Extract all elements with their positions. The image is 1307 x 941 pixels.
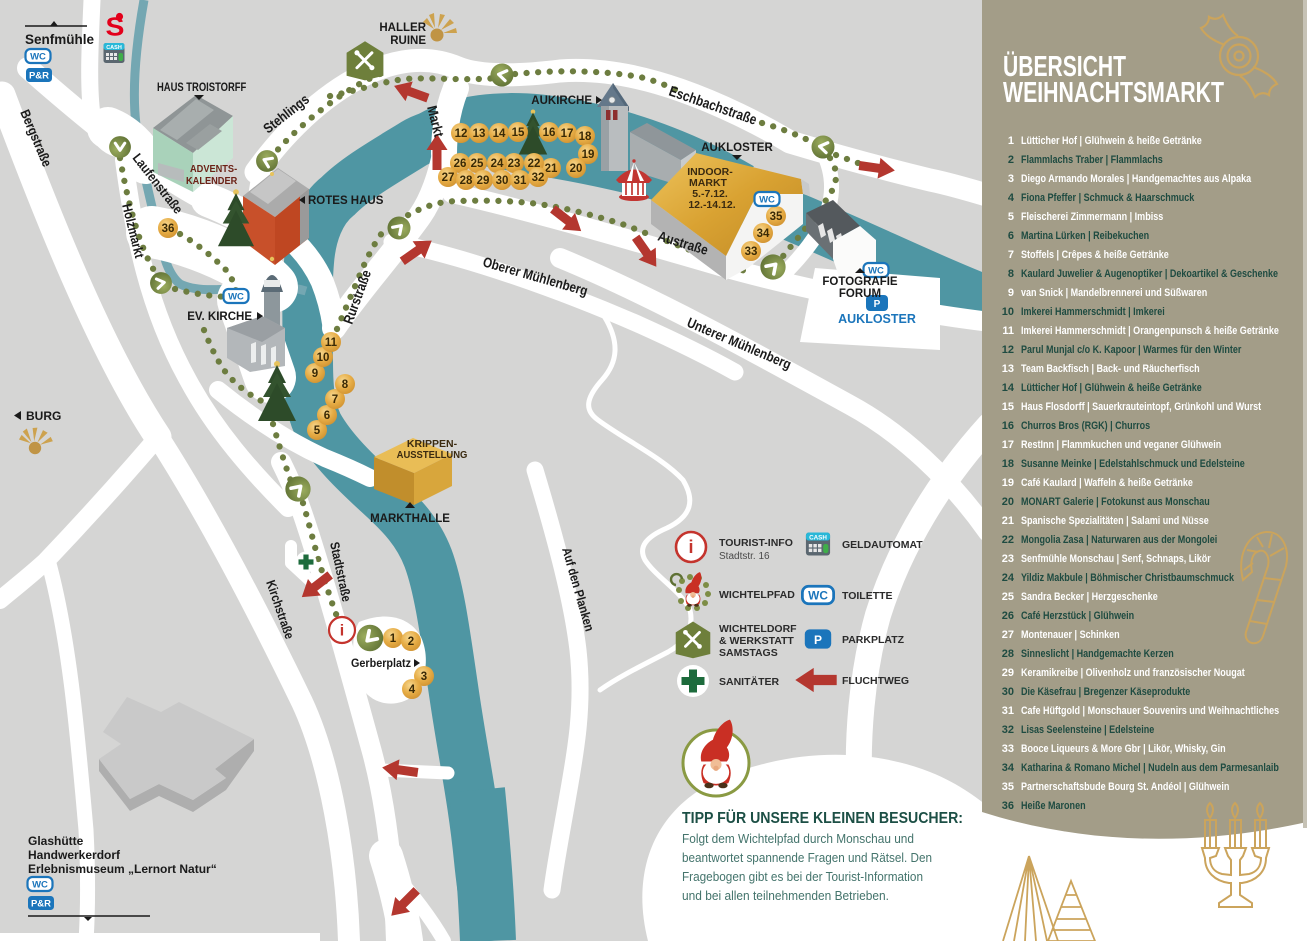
svg-text:Lütticher Hof | Glühwein & hei: Lütticher Hof | Glühwein & heiße Getränk… <box>1021 135 1202 147</box>
svg-text:FORUM: FORUM <box>839 288 881 300</box>
svg-text:26: 26 <box>1002 610 1014 622</box>
svg-text:HALLER: HALLER <box>379 22 426 34</box>
svg-text:9: 9 <box>1008 287 1014 299</box>
svg-text:34: 34 <box>1002 762 1015 774</box>
svg-text:Erlebnismuseum „Lernort Natur“: Erlebnismuseum „Lernort Natur“ <box>28 862 217 876</box>
svg-text:Churros Bros (RGK) | Churros: Churros Bros (RGK) | Churros <box>1021 420 1151 432</box>
svg-text:Diego Armando Morales | Handge: Diego Armando Morales | Handgemachtes au… <box>1021 173 1252 185</box>
svg-text:Partnerschaftsbude Bourg St. A: Partnerschaftsbude Bourg St. Andéol | Gl… <box>1021 781 1229 793</box>
svg-text:WEIHNACHTSMARKT: WEIHNACHTSMARKT <box>1003 77 1224 109</box>
svg-text:Lütticher Hof | Glühwein & hei: Lütticher Hof | Glühwein & heiße Getränk… <box>1021 382 1202 394</box>
svg-text:16: 16 <box>1002 420 1014 432</box>
svg-text:23: 23 <box>508 158 521 170</box>
svg-text:Fleischerei Zimmermann | Imbis: Fleischerei Zimmermann | Imbiss <box>1021 211 1164 223</box>
svg-text:Fiona Pfeffer | Schmuck & Haar: Fiona Pfeffer | Schmuck & Haarschmuck <box>1021 192 1195 204</box>
svg-text:4: 4 <box>409 684 416 696</box>
svg-text:26: 26 <box>454 158 467 170</box>
svg-text:36: 36 <box>162 223 175 235</box>
svg-text:22: 22 <box>1002 534 1014 546</box>
svg-text:11: 11 <box>325 337 338 349</box>
svg-text:10: 10 <box>317 352 330 364</box>
svg-text:Senfmühle Monschau | Senf, Sch: Senfmühle Monschau | Senf, Schnaps, Likö… <box>1021 553 1211 565</box>
svg-text:28: 28 <box>1002 648 1014 660</box>
svg-text:36: 36 <box>1002 800 1014 812</box>
svg-text:6: 6 <box>324 410 330 422</box>
svg-text:2: 2 <box>408 636 414 648</box>
svg-text:BURG: BURG <box>26 409 61 423</box>
svg-text:Martina Lürken | Reibekuchen: Martina Lürken | Reibekuchen <box>1021 230 1149 242</box>
svg-text:Stoffels | Crêpes & heiße Getr: Stoffels | Crêpes & heiße Getränke <box>1021 249 1169 261</box>
svg-text:AUKLOSTER: AUKLOSTER <box>838 312 916 326</box>
svg-text:Yildiz Makbule | Böhmischer Ch: Yildiz Makbule | Böhmischer Christbaumsc… <box>1021 572 1234 584</box>
svg-text:Sinneslicht | Handgemachte Ker: Sinneslicht | Handgemachte Kerzen <box>1021 648 1174 660</box>
svg-text:Flammlachs Traber | Flammlachs: Flammlachs Traber | Flammlachs <box>1021 154 1163 166</box>
svg-text:Keramikreibe | Olivenholz und: Keramikreibe | Olivenholz und französisc… <box>1021 667 1245 679</box>
svg-text:5: 5 <box>1008 211 1014 223</box>
svg-text:31: 31 <box>1002 705 1014 717</box>
svg-text:Senfmühle: Senfmühle <box>25 32 95 47</box>
svg-text:33: 33 <box>1002 743 1014 755</box>
svg-text:beantwortet spannende Fragen u: beantwortet spannende Fragen und Rätsel.… <box>682 850 932 865</box>
svg-text:Imkerei Hammerschmidt | Imkere: Imkerei Hammerschmidt | Imkerei <box>1021 306 1165 318</box>
svg-text:Parul Munjal c/o K. Kapoor | W: Parul Munjal c/o K. Kapoor | Warmes für … <box>1021 344 1241 356</box>
svg-text:28: 28 <box>460 175 473 187</box>
svg-text:32: 32 <box>1002 724 1014 736</box>
svg-text:20: 20 <box>570 163 583 175</box>
svg-text:Sandra Becker | Herzgeschenke: Sandra Becker | Herzgeschenke <box>1021 591 1158 603</box>
svg-text:14: 14 <box>1002 382 1015 394</box>
svg-text:13: 13 <box>1002 363 1014 375</box>
svg-text:SAMSTAGS: SAMSTAGS <box>719 647 778 659</box>
svg-text:11: 11 <box>1002 325 1014 337</box>
svg-text:13: 13 <box>473 128 486 140</box>
svg-text:AUSSTELLUNG: AUSSTELLUNG <box>397 450 468 462</box>
svg-text:3: 3 <box>421 671 427 683</box>
svg-text:33: 33 <box>745 246 758 258</box>
svg-text:KALENDER: KALENDER <box>186 176 237 188</box>
svg-text:19: 19 <box>582 149 595 161</box>
svg-text:4: 4 <box>1008 192 1015 204</box>
svg-text:Katharina & Romano Michel | Nu: Katharina & Romano Michel | Nudeln aus d… <box>1021 762 1279 774</box>
svg-text:van Snick | Mandelbrennerei un: van Snick | Mandelbrennerei und Süßwaren <box>1021 287 1207 299</box>
svg-text:25: 25 <box>471 158 484 170</box>
svg-text:und bei allen teilnehmenden Be: und bei allen teilnehmenden Betrieben. <box>682 888 889 903</box>
svg-text:ADVENTS-: ADVENTS- <box>190 164 237 176</box>
svg-text:Handwerkerdorf: Handwerkerdorf <box>28 848 121 862</box>
svg-text:Glashütte: Glashütte <box>28 834 84 848</box>
svg-text:19: 19 <box>1002 477 1014 489</box>
svg-text:12: 12 <box>1002 344 1014 356</box>
svg-text:15: 15 <box>1002 401 1014 413</box>
svg-text:Café Kaulard | Waffeln & heiße: Café Kaulard | Waffeln & heiße Getränke <box>1021 477 1193 489</box>
svg-text:23: 23 <box>1002 553 1014 565</box>
svg-text:14: 14 <box>493 128 506 140</box>
svg-text:18: 18 <box>1002 458 1014 470</box>
svg-text:i: i <box>688 537 693 557</box>
svg-text:WICHTELPFAD: WICHTELPFAD <box>719 589 795 601</box>
svg-text:PARKPLATZ: PARKPLATZ <box>842 634 905 646</box>
svg-text:1: 1 <box>390 633 397 645</box>
svg-text:17: 17 <box>1002 439 1014 451</box>
svg-text:5: 5 <box>314 425 321 437</box>
svg-text:6: 6 <box>1008 230 1014 242</box>
svg-text:Lisas Seelensteine | Edelstein: Lisas Seelensteine | Edelsteine <box>1021 724 1155 736</box>
svg-text:30: 30 <box>496 175 509 187</box>
svg-text:Team Backfisch | Back- und Räu: Team Backfisch | Back- und Räucherfisch <box>1021 363 1200 375</box>
svg-text:MONART Galerie | Fotokunst aus: MONART Galerie | Fotokunst aus Monschau <box>1021 496 1210 508</box>
svg-text:20: 20 <box>1002 496 1014 508</box>
svg-text:Die Käsefrau | Bregenzer Käsep: Die Käsefrau | Bregenzer Käseprodukte <box>1021 686 1191 698</box>
svg-text:35: 35 <box>770 211 783 223</box>
svg-text:Imkerei Hammerschmidt | Orange: Imkerei Hammerschmidt | Orangenpunsch & … <box>1021 325 1279 337</box>
svg-text:Mongolia Zasa | Naturwaren aus: Mongolia Zasa | Naturwaren aus der Mongo… <box>1021 534 1217 546</box>
svg-text:Gerberplatz: Gerberplatz <box>351 658 411 671</box>
svg-text:8: 8 <box>342 379 349 391</box>
svg-text:12.-14.12.: 12.-14.12. <box>688 199 735 211</box>
svg-text:Café Herzstück | Glühwein: Café Herzstück | Glühwein <box>1021 610 1134 622</box>
svg-text:35: 35 <box>1002 781 1014 793</box>
svg-text:9: 9 <box>312 368 318 380</box>
svg-text:Spanische Spezialitäten | Sala: Spanische Spezialitäten | Salami und Nüs… <box>1021 515 1209 527</box>
svg-text:29: 29 <box>1002 667 1014 679</box>
svg-text:25: 25 <box>1002 591 1014 603</box>
svg-text:1: 1 <box>1008 135 1014 147</box>
svg-text:SANITÄTER: SANITÄTER <box>719 675 780 688</box>
svg-text:MARKTHALLE: MARKTHALLE <box>370 513 450 525</box>
svg-text:RUINE: RUINE <box>390 35 426 47</box>
svg-text:ROTES HAUS: ROTES HAUS <box>308 195 384 207</box>
svg-text:KRIPPEN-: KRIPPEN- <box>407 438 458 450</box>
svg-text:RestInn | Flammkuchen und vega: RestInn | Flammkuchen und veganer Glühwe… <box>1021 439 1221 451</box>
svg-text:12: 12 <box>455 128 468 140</box>
svg-text:TIPP FÜR UNSERE KLEINEN BESUCH: TIPP FÜR UNSERE KLEINEN BESUCHER: <box>682 810 963 827</box>
svg-text:30: 30 <box>1002 686 1014 698</box>
svg-text:Folgt dem Wichtelpfad durch Mo: Folgt dem Wichtelpfad durch Monschau und <box>682 831 914 846</box>
svg-text:AUKLOSTER: AUKLOSTER <box>701 142 773 154</box>
svg-text:AUKIRCHE: AUKIRCHE <box>531 95 592 107</box>
svg-text:34: 34 <box>757 228 770 240</box>
svg-text:Booce Liqueurs & More Gbr | Li: Booce Liqueurs & More Gbr | Likör, Whisk… <box>1021 743 1226 755</box>
svg-text:2: 2 <box>1008 154 1014 166</box>
svg-text:3: 3 <box>1008 173 1014 185</box>
svg-text:24: 24 <box>1002 572 1015 584</box>
svg-text:16: 16 <box>543 127 556 139</box>
svg-text:10: 10 <box>1002 306 1014 318</box>
svg-text:WICHTELDORF: WICHTELDORF <box>719 623 797 635</box>
svg-text:7: 7 <box>332 394 338 406</box>
svg-text:FOTOGRAFIE: FOTOGRAFIE <box>822 276 898 288</box>
svg-text:EV. KIRCHE: EV. KIRCHE <box>187 311 252 323</box>
svg-text:Montenauer | Schinken: Montenauer | Schinken <box>1021 629 1120 641</box>
svg-text:i: i <box>340 623 344 640</box>
svg-text:15: 15 <box>512 127 525 139</box>
svg-text:Cafe Hüftgold | Monschauer Sou: Cafe Hüftgold | Monschauer Souvenirs und… <box>1021 705 1280 717</box>
svg-text:FLUCHTWEG: FLUCHTWEG <box>842 675 909 687</box>
svg-text:Kaulard Juwelier & Augenoptike: Kaulard Juwelier & Augenoptiker | Dekoar… <box>1021 268 1278 280</box>
svg-text:7: 7 <box>1008 249 1014 261</box>
svg-text:HAUS TROISTORFF: HAUS TROISTORFF <box>157 81 247 94</box>
svg-text:17: 17 <box>561 128 574 140</box>
svg-text:TOILETTE: TOILETTE <box>842 590 893 602</box>
svg-text:Stadtstr. 16: Stadtstr. 16 <box>719 551 770 562</box>
svg-text:29: 29 <box>477 175 490 187</box>
svg-text:8: 8 <box>1008 268 1014 280</box>
svg-text:Fragebogen gibt es bei der Tou: Fragebogen gibt es bei der Tourist-Infor… <box>682 869 923 884</box>
svg-text:27: 27 <box>442 172 455 184</box>
svg-text:32: 32 <box>532 172 545 184</box>
svg-text:18: 18 <box>579 131 592 143</box>
svg-text:TOURIST-INFO: TOURIST-INFO <box>719 537 793 549</box>
svg-text:27: 27 <box>1002 629 1014 641</box>
svg-text:21: 21 <box>1002 515 1014 527</box>
svg-text:24: 24 <box>491 158 504 170</box>
svg-text:31: 31 <box>514 175 527 187</box>
svg-text:Heiße Maronen: Heiße Maronen <box>1021 800 1086 812</box>
svg-text:GELDAUTOMAT: GELDAUTOMAT <box>842 539 923 551</box>
svg-text:& WERKSTATT: & WERKSTATT <box>719 635 794 647</box>
svg-text:Haus Flosdorff | Sauerkrautein: Haus Flosdorff | Sauerkrauteintopf, Grün… <box>1021 401 1262 413</box>
svg-text:Susanne Meinke | Edelstahlschm: Susanne Meinke | Edelstahlschmuck und Ed… <box>1021 458 1245 470</box>
